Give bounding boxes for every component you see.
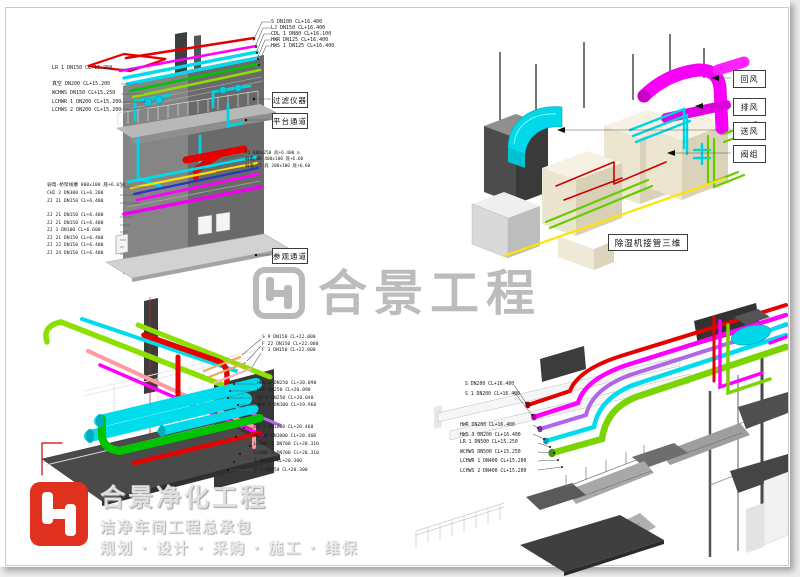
view-dehumidifier-3d: 回风 排风 送风 阀组 除湿机接管三维 [408, 8, 788, 282]
pipe-label-group-3: LR 1 DN500 CL+15.250 WCHWS DN500 CL+15.2… [460, 438, 526, 477]
pipe-label-group-mid-right: P1 800x250 底+6.400 a 弱电_BR 400x100 底+6.6… [245, 151, 310, 170]
pipe-label-group-left-lower-2: ZJ 21 DN150 CL+6.400 ZJ 21 DN150 CL+6.40… [47, 212, 103, 258]
pipe-label: LCHWR 1 DN200 CL+15.200 [52, 98, 121, 107]
dehumidifier-isometric-drawing [408, 8, 788, 282]
company-brand-block: 合景净化工程 洁净车间工程总承包 规划 · 设计 · 采购 · 施工 · 维保 [30, 482, 359, 557]
pipe-label: ZJ 24 DN150 CL+6.400 [47, 250, 103, 258]
callout-text: 参观通道 [273, 251, 307, 262]
pipe-label-group-left-lower-1: 弱电-桥架线槽 800x100 底+6.650 CHI 2 DN300 CL+6… [47, 182, 125, 206]
pipe-label: HWR DN250 CL+20.090 [257, 387, 316, 394]
company-name: 合景净化工程 [100, 484, 359, 512]
pipe-label: F 3 DN150 CL+22.000 [262, 348, 318, 355]
pipe-label: CW 1 DN250 CL+20.040 [257, 395, 316, 402]
pipe-label-group-left-upper-1: LR 1 DN150 CL+15.250 [52, 65, 112, 71]
watermark-text: 合景工程 [318, 269, 542, 318]
callout-platform-walkway: 平台通道 [272, 113, 308, 129]
pipe-label: LCHWR 1 DN700 CL+20.310 [254, 441, 319, 450]
pipe-label: ZJ 1 DN100 CL+6.600 [47, 227, 103, 235]
callout-text: 过滤仪器 [273, 95, 307, 106]
callout-text: 排风 [741, 102, 759, 113]
pipe-label: WCHWS DN150 CL+15.250 [52, 89, 121, 98]
callout-text: 平台通道 [273, 116, 307, 127]
pipe-label: HWS 1 DN125 CL+16.400 [271, 43, 334, 49]
callout-text: 送风 [741, 126, 759, 137]
view-stairwell-3d: S DN200 CL+16.400 S 1 DN200 CL+16.400 HW… [408, 295, 788, 577]
pipe-label: HWS 3 DN250 CL+20.090 [257, 380, 316, 387]
callout-text: 回风 [741, 74, 759, 85]
pipe-label: LR 1 DN150 CL+15.250 [52, 65, 112, 71]
pipe-label-group-left-upper-2: 真空 DN200 CL+15.200 WCHWS DN150 CL+15.250… [52, 80, 121, 115]
pipe-label: HWR DN200 CL+16.400 [460, 421, 521, 431]
pipe-label: LR 1 DN1000 CL+20.460 [254, 424, 319, 433]
pipe-label-group-top-right: S DN100 CL+16.400 LJ DN150 CL+16.400 CDL… [271, 19, 334, 49]
pipe-label: S 1 DN250 CL+20.300 [254, 467, 319, 476]
pipe-label: S 9 DN150 CL+22.000 [262, 335, 318, 342]
watermark: 合景工程 [252, 266, 542, 320]
pipe-label: LR 1 DN500 CL+15.250 [460, 438, 526, 448]
pipe-label: LCHWS 2 DN400 CL+15.200 [460, 467, 526, 477]
pipe-label: LCHWS 2 DN700 CL+20.310 [254, 450, 319, 459]
callout-visitor-walkway: 参观通道 [272, 248, 308, 264]
pipe-label: 弱电_BR 400x100 底+6.60 [245, 157, 310, 163]
company-services: 规划 · 设计 · 采购 · 施工 · 维保 [100, 539, 359, 557]
view-title-dehumidifier: 除湿机接管三维 [608, 234, 688, 251]
pipe-label: LCHWR 1 DN400 CL+15.200 [460, 457, 526, 467]
pipe-label: S DN200 CL+16.400 [465, 380, 520, 390]
callout-return-air: 回风 [733, 70, 766, 88]
pipe-label: S 1 DN200 CL+16.400 [465, 390, 520, 400]
company-tagline: 洁净车间工程总承包 [100, 518, 359, 536]
pipe-label: ZJ 21 DN150 CL+6.400 [47, 235, 103, 243]
pipe-label-group-1: S DN200 CL+16.400 S 1 DN200 CL+16.400 [465, 380, 520, 399]
pipe-label-group-1: S 9 DN150 CL+22.000 F 22 DN150 CL+22.000… [262, 335, 318, 355]
pipe-label: ZJ 21 DN150 CL+6.400 [47, 220, 103, 228]
view-building-3d: S DN100 CL+16.400 LJ DN150 CL+16.400 CDL… [28, 8, 403, 282]
pipe-label: 弱电-桥架线槽 800x100 底+6.650 [47, 182, 125, 190]
view-title-text: 除湿机接管三维 [615, 237, 682, 249]
pipe-label-group-3: LR 1 DN1000 CL+20.460 WCHWS DN1000 CL+20… [254, 424, 319, 475]
callout-filter-instrument: 过滤仪器 [272, 92, 308, 108]
company-logo-icon [30, 482, 88, 546]
drawing-sheet: S DN100 CL+16.400 LJ DN150 CL+16.400 CDL… [0, 0, 790, 567]
pipe-label: CHI 2 DN300 CL+6.200 [47, 190, 125, 198]
pipe-label: 真空 DN200 CL+15.200 [52, 80, 121, 89]
pipe-label: ZJ 21 DN150 CL+6.400 [47, 198, 125, 206]
callout-text: 阀组 [741, 149, 759, 160]
pipe-label: WWP 1 DN100 CL+19.960 [257, 402, 316, 409]
pipe-label: WCHWS DN500 CL+15.250 [460, 448, 526, 458]
watermark-logo-icon [252, 266, 306, 320]
pipe-label: LCHWS 2 DN200 CL+15.200 [52, 106, 121, 115]
pipe-label: WCHWS DN1000 CL+20.460 [254, 433, 319, 442]
pipe-label: ZJ 21 DN150 CL+6.400 [47, 212, 103, 220]
pipe-label: S DN350 CL+20.300 [254, 458, 319, 467]
pipe-label: 弱电-C7 底 200x100 底+6.60 [245, 164, 310, 170]
pipe-label: ZJ 22 DN150 CL+6.400 [47, 242, 103, 250]
callout-exhaust-air: 排风 [733, 98, 766, 116]
pipe-label-group-2: HWS 3 DN250 CL+20.090 HWR DN250 CL+20.09… [257, 380, 316, 410]
callout-valve-group: 阀组 [733, 145, 766, 163]
callout-supply-air: 送风 [733, 122, 766, 140]
